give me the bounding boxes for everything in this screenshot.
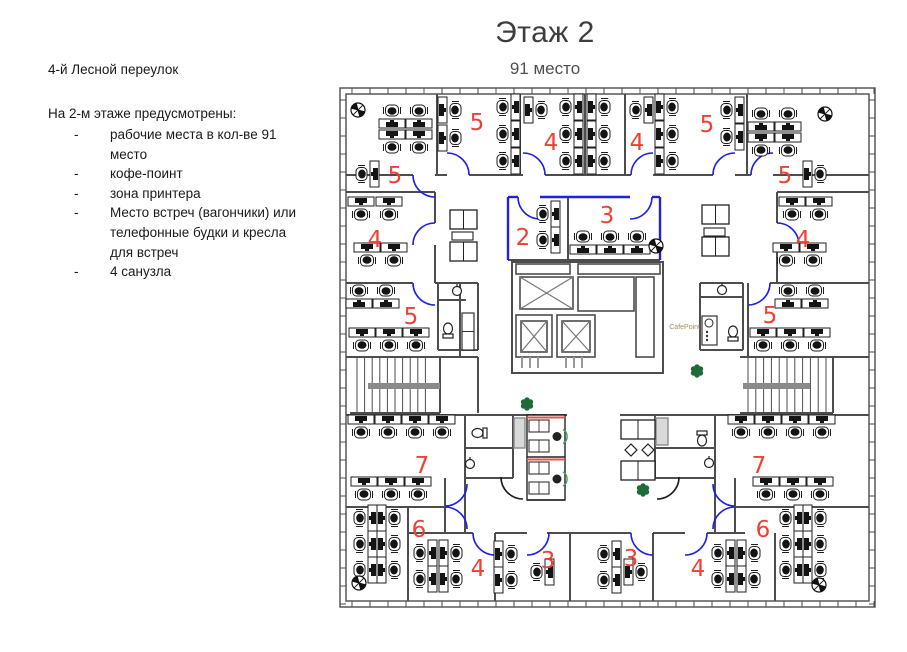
desk <box>377 557 400 583</box>
monitor <box>656 128 661 140</box>
monitor-stand <box>739 421 743 423</box>
coffee-table <box>704 228 725 236</box>
staircase <box>743 357 826 413</box>
cafepoint-burner <box>706 331 708 333</box>
door-arc <box>445 484 467 506</box>
chair-seat <box>782 540 790 549</box>
room-seat-count: 3 <box>541 548 556 574</box>
chair-seat <box>385 341 394 349</box>
chair-seat <box>782 514 790 523</box>
monitor-stand <box>369 516 371 520</box>
monitor-stand <box>809 516 811 520</box>
toilet-bowl <box>698 435 707 446</box>
chair-seat <box>668 157 676 166</box>
chair-seat <box>357 428 366 436</box>
monitor-stand <box>390 136 394 138</box>
monitor <box>588 128 593 140</box>
monitor-stand <box>581 246 585 248</box>
chair-seat <box>637 568 645 577</box>
monitor <box>409 416 421 421</box>
desk <box>348 197 374 220</box>
monitor-stand <box>445 577 447 581</box>
chair-seat <box>633 233 642 241</box>
floor-plan: CafePoint54455544235577664334 <box>0 0 907 652</box>
chair-seat <box>816 540 824 549</box>
monitor-stand <box>416 483 420 485</box>
chair-seat <box>499 103 507 112</box>
chair-seat <box>537 106 545 115</box>
monitor-stand <box>512 159 514 163</box>
monitor-stand <box>766 421 770 423</box>
monitor-stand <box>635 246 639 248</box>
chair-seat <box>390 540 398 549</box>
monitor <box>378 512 383 524</box>
monitor-stand <box>429 577 431 581</box>
monitor <box>353 302 365 307</box>
door-arc <box>631 153 653 175</box>
desk <box>351 477 377 500</box>
monitor-stand <box>593 159 595 163</box>
booth-chair <box>553 475 562 484</box>
monitor-stand <box>593 105 595 109</box>
chair-seat <box>764 428 773 436</box>
desk <box>728 415 754 438</box>
room-seat-count: 2 <box>516 225 531 251</box>
monitor <box>514 128 519 140</box>
monitor <box>378 538 383 550</box>
desk <box>406 105 432 128</box>
monitor-stand <box>793 421 797 423</box>
chair-seat <box>451 106 459 115</box>
monitor <box>358 478 370 483</box>
chair-seat <box>723 106 731 115</box>
monitor-stand <box>613 578 615 582</box>
plant-icon <box>637 483 649 496</box>
toilet-icon <box>443 323 453 338</box>
chair-seat <box>723 133 731 142</box>
plant-leaf <box>524 401 529 406</box>
desk <box>414 566 437 592</box>
desk <box>587 121 610 147</box>
chair-seat <box>533 568 541 577</box>
chair-seat <box>784 287 793 295</box>
chair-seat <box>784 146 793 154</box>
monitor <box>755 134 767 139</box>
monitor <box>373 168 378 180</box>
monitor-stand <box>811 249 815 251</box>
toilet-bowl <box>472 429 483 438</box>
toilet-tank <box>443 334 453 338</box>
desk <box>803 161 826 187</box>
desk <box>378 477 404 500</box>
desk <box>375 415 401 438</box>
desk <box>379 105 405 128</box>
desk <box>497 94 520 120</box>
monitor <box>554 208 559 220</box>
desk <box>721 97 744 123</box>
room-seat-count: 4 <box>691 556 706 582</box>
monitor-stand <box>809 172 811 176</box>
desk <box>377 505 400 531</box>
monitor <box>786 198 798 203</box>
elevator-core <box>512 262 663 373</box>
monitor <box>514 155 519 167</box>
monitor <box>383 329 395 334</box>
monitor <box>514 101 519 113</box>
monitor-stand <box>661 105 663 109</box>
monitor <box>440 547 445 559</box>
monitor-stand <box>359 421 363 423</box>
chair-seat <box>714 549 722 558</box>
chair-seat <box>815 210 824 218</box>
desk <box>438 97 461 123</box>
monitor <box>816 416 828 421</box>
monitor <box>588 101 593 113</box>
desk <box>806 197 832 220</box>
monitor <box>356 329 368 334</box>
monitor <box>762 416 774 421</box>
desk <box>630 97 653 123</box>
column-icon <box>812 578 826 592</box>
monitor <box>782 134 794 139</box>
monitor <box>431 547 436 559</box>
desk <box>597 231 623 254</box>
monitor-stand <box>392 249 396 251</box>
monitor-stand <box>809 542 811 546</box>
chair-seat <box>356 540 364 549</box>
monitor-stand <box>764 483 768 485</box>
chair-seat <box>562 130 570 139</box>
monitor <box>383 198 395 203</box>
monitor-stand <box>795 542 797 546</box>
door-arc <box>630 197 652 219</box>
monitor-stand <box>387 203 391 205</box>
door-arc <box>748 283 770 305</box>
chair-seat <box>415 143 424 151</box>
monitor <box>729 573 734 585</box>
monitor <box>797 512 802 524</box>
chair-seat <box>539 210 547 219</box>
door-arc <box>413 283 435 305</box>
monitor-stand <box>386 421 390 423</box>
floor-plan-page: Этаж 2 91 место 4-й Лесной переулок На 2… <box>0 0 907 652</box>
desk <box>560 148 583 174</box>
chair-seat <box>714 575 722 584</box>
monitor-stand <box>645 108 647 112</box>
monitor-stand <box>575 159 577 163</box>
monitor <box>371 564 376 576</box>
monitor <box>804 512 809 524</box>
monitor <box>797 564 802 576</box>
cafepoint-label: CafePoint <box>669 324 700 331</box>
chair-seat <box>452 575 460 584</box>
chair-seat <box>562 157 570 166</box>
monitor <box>388 244 400 249</box>
shower-cabinet <box>514 418 525 448</box>
monitor-stand <box>429 551 431 555</box>
column-icon <box>352 576 366 590</box>
monitor <box>382 416 394 421</box>
plant-icon <box>691 364 703 377</box>
monitor <box>577 128 582 140</box>
monitor <box>809 302 821 307</box>
desk <box>373 285 399 308</box>
shaft <box>516 264 570 274</box>
chair-seat <box>579 233 588 241</box>
desk <box>807 477 833 500</box>
chair-seat <box>816 566 824 575</box>
side-table <box>642 444 654 456</box>
chair-seat <box>382 287 391 295</box>
chair-seat <box>606 233 615 241</box>
desk <box>381 243 407 266</box>
monitor-stand <box>736 135 738 139</box>
monitor-stand <box>795 516 797 520</box>
monitor <box>371 538 376 550</box>
column-icon <box>818 107 832 121</box>
room-seat-count: 7 <box>752 453 767 479</box>
column-icon <box>351 103 365 117</box>
monitor-stand <box>390 120 394 122</box>
desk <box>348 415 374 438</box>
desk <box>438 125 461 151</box>
monitor-stand <box>383 516 385 520</box>
room-seat-count: 5 <box>763 303 778 329</box>
monitor <box>738 573 743 585</box>
chair-seat <box>356 566 364 575</box>
monitor <box>355 416 367 421</box>
desk <box>712 566 735 592</box>
toilet-icon <box>472 428 487 438</box>
monitor-stand <box>387 334 391 336</box>
monitor <box>811 329 823 334</box>
monitor <box>738 131 743 143</box>
chair-seat <box>452 549 460 558</box>
sink-icon <box>466 460 475 469</box>
room-seat-count: 3 <box>600 203 615 229</box>
chair-seat <box>358 341 367 349</box>
desk <box>748 108 774 131</box>
monitor <box>588 155 593 167</box>
door-arc <box>413 175 435 197</box>
plant-icon <box>521 397 533 410</box>
desk <box>537 227 560 253</box>
desk <box>737 566 760 592</box>
monitor <box>789 416 801 421</box>
monitor-stand <box>530 108 532 112</box>
monitor <box>738 104 743 116</box>
floor-plan-svg: CafePoint54455544235577664334 <box>0 0 907 652</box>
door-arc <box>473 533 495 555</box>
monitor-stand <box>786 300 790 302</box>
monitor <box>755 125 767 130</box>
monitor-stand <box>761 334 765 336</box>
desk <box>349 328 375 351</box>
door-arc <box>413 223 435 245</box>
monitor-stand <box>357 300 361 302</box>
monitor <box>804 564 809 576</box>
chair-seat <box>750 549 758 558</box>
monitor <box>440 573 445 585</box>
monitor <box>495 574 500 586</box>
monitor-stand <box>500 578 502 582</box>
chair-seat <box>507 550 515 559</box>
chair-seat <box>816 170 824 179</box>
chair-seat <box>759 341 768 349</box>
chair-seat <box>818 428 827 436</box>
monitor-stand <box>369 542 371 546</box>
desk <box>537 201 560 227</box>
chair-seat <box>416 575 424 584</box>
door-arc <box>657 477 679 499</box>
shaft <box>636 277 654 357</box>
monitor-stand <box>417 136 421 138</box>
coffee-table <box>452 232 473 240</box>
room-seat-count: 4 <box>630 130 645 156</box>
desk <box>803 505 826 531</box>
chair-seat <box>414 490 423 498</box>
door-arc <box>713 484 735 506</box>
desk <box>775 108 801 131</box>
desk <box>780 557 803 583</box>
monitor <box>615 574 620 586</box>
chair-seat <box>499 130 507 139</box>
monitor-stand <box>575 105 577 109</box>
desk <box>524 97 547 123</box>
monitor-stand <box>512 105 514 109</box>
chair-seat <box>668 103 676 112</box>
desk <box>755 415 781 438</box>
chair-seat <box>784 110 793 118</box>
desk <box>624 231 650 254</box>
room-seat-count: 4 <box>471 556 486 582</box>
shower-cabinet <box>656 418 668 445</box>
toilet-icon <box>697 431 707 446</box>
room-seat-count: 6 <box>412 517 427 543</box>
column-icon <box>649 239 663 253</box>
monitor-stand <box>369 568 371 572</box>
monitor <box>439 132 444 144</box>
chair-seat <box>388 143 397 151</box>
sink-icon <box>718 286 727 295</box>
room-seat-count: 5 <box>470 110 485 136</box>
monitor-stand <box>790 203 794 205</box>
desk <box>497 148 520 174</box>
desk <box>587 148 610 174</box>
monitor-stand <box>786 139 790 141</box>
monitor <box>804 168 809 180</box>
monitor <box>797 538 802 550</box>
desk <box>356 161 379 187</box>
door-arc <box>447 153 469 175</box>
chair-seat <box>632 106 640 115</box>
chair-seat <box>499 157 507 166</box>
chair-seat <box>809 256 818 264</box>
staircase <box>357 357 440 413</box>
chair-seat <box>788 210 797 218</box>
monitor <box>735 416 747 421</box>
monitor <box>814 478 826 483</box>
room-seat-count: 4 <box>796 227 811 253</box>
monitor-stand <box>817 203 821 205</box>
monitor <box>615 548 620 560</box>
desk <box>598 541 621 567</box>
room-seat-count: 5 <box>778 163 793 189</box>
door-arc <box>713 507 735 529</box>
desk <box>750 328 776 351</box>
toilet-tank <box>483 428 487 438</box>
monitor <box>729 547 734 559</box>
desk <box>809 415 835 438</box>
monitor-stand <box>575 132 577 136</box>
stair-landing-bar <box>368 383 440 389</box>
monitor-stand <box>608 246 612 248</box>
chair-seat <box>412 341 421 349</box>
chair-seat <box>387 490 396 498</box>
monitor-stand <box>552 238 554 242</box>
chair-seat <box>757 146 766 154</box>
monitor <box>757 329 769 334</box>
desk <box>779 197 805 220</box>
monitor-stand <box>743 551 745 555</box>
monitor <box>355 198 367 203</box>
chair-seat <box>355 287 364 295</box>
monitor <box>431 573 436 585</box>
monitor-stand <box>661 132 663 136</box>
monitor-stand <box>500 552 502 556</box>
cafepoint-burner <box>706 339 708 341</box>
monitor-stand <box>362 483 366 485</box>
toilet-tank <box>728 337 738 341</box>
door-arc <box>713 153 735 175</box>
desk <box>429 415 455 438</box>
chair-seat <box>600 130 608 139</box>
chair-seat <box>411 428 420 436</box>
monitor-stand <box>815 334 819 336</box>
monitor-stand <box>383 568 385 572</box>
monitor-stand <box>417 120 421 122</box>
desk <box>803 531 826 557</box>
chair-seat <box>813 341 822 349</box>
monitor <box>371 512 376 524</box>
desk <box>777 328 803 351</box>
desk <box>354 531 377 557</box>
monitor-stand <box>384 300 388 302</box>
toilet-icon <box>728 326 738 341</box>
desk <box>403 328 429 351</box>
monitor <box>784 329 796 334</box>
monitor <box>813 198 825 203</box>
chair-seat <box>786 341 795 349</box>
monitor-stand <box>818 483 822 485</box>
monitor-stand <box>784 249 788 251</box>
monitor <box>386 122 398 127</box>
monitor-stand <box>445 551 447 555</box>
toilet-bowl <box>444 323 453 334</box>
desk <box>402 415 428 438</box>
chair-seat <box>390 514 398 523</box>
monitor-stand <box>809 568 811 572</box>
booth-chair <box>553 432 562 441</box>
monitor <box>413 122 425 127</box>
monitor <box>439 104 444 116</box>
lounge-furniture <box>702 205 729 256</box>
desk <box>753 477 779 500</box>
chair-seat <box>762 490 771 498</box>
desk <box>780 531 803 557</box>
chair-seat <box>539 236 547 245</box>
desk <box>497 121 520 147</box>
